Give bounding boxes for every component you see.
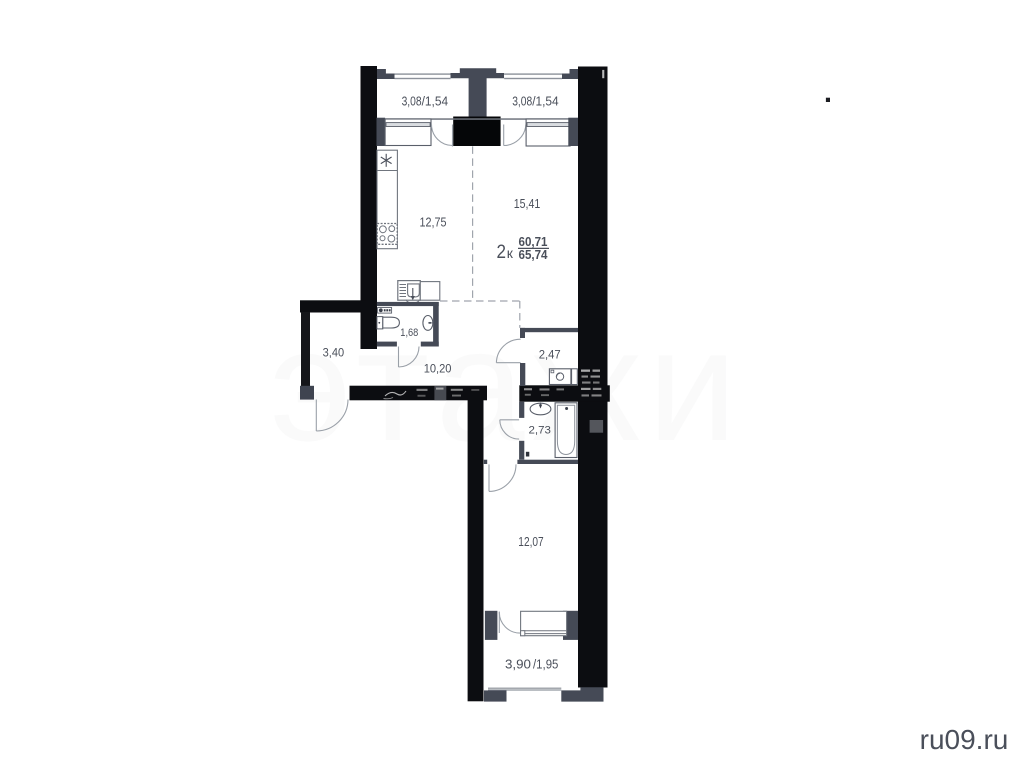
svg-text:к: к: [507, 245, 514, 261]
svg-text:12,07: 12,07: [518, 535, 543, 549]
svg-text:1,68: 1,68: [400, 327, 418, 339]
svg-text:2,47: 2,47: [539, 350, 561, 362]
svg-text:3,40: 3,40: [323, 346, 345, 360]
svg-text:этажи: этажи: [270, 295, 745, 474]
svg-text:3,90: 3,90: [505, 657, 531, 671]
svg-text:15,41: 15,41: [514, 197, 541, 211]
svg-text:3,08: 3,08: [402, 93, 422, 108]
svg-text:/1,95: /1,95: [533, 657, 558, 671]
svg-text:/1,54: /1,54: [532, 93, 559, 108]
svg-text:/1,54: /1,54: [422, 93, 449, 108]
svg-text:2: 2: [497, 241, 507, 263]
svg-text:65,74: 65,74: [519, 248, 548, 262]
svg-text:10,20: 10,20: [424, 362, 452, 376]
svg-text:2,73: 2,73: [529, 425, 551, 437]
svg-text:12,75: 12,75: [420, 216, 447, 230]
svg-text:60,71: 60,71: [519, 235, 548, 249]
svg-text:ru09.ru: ru09.ru: [920, 724, 1009, 755]
svg-text:3,08: 3,08: [512, 93, 532, 108]
